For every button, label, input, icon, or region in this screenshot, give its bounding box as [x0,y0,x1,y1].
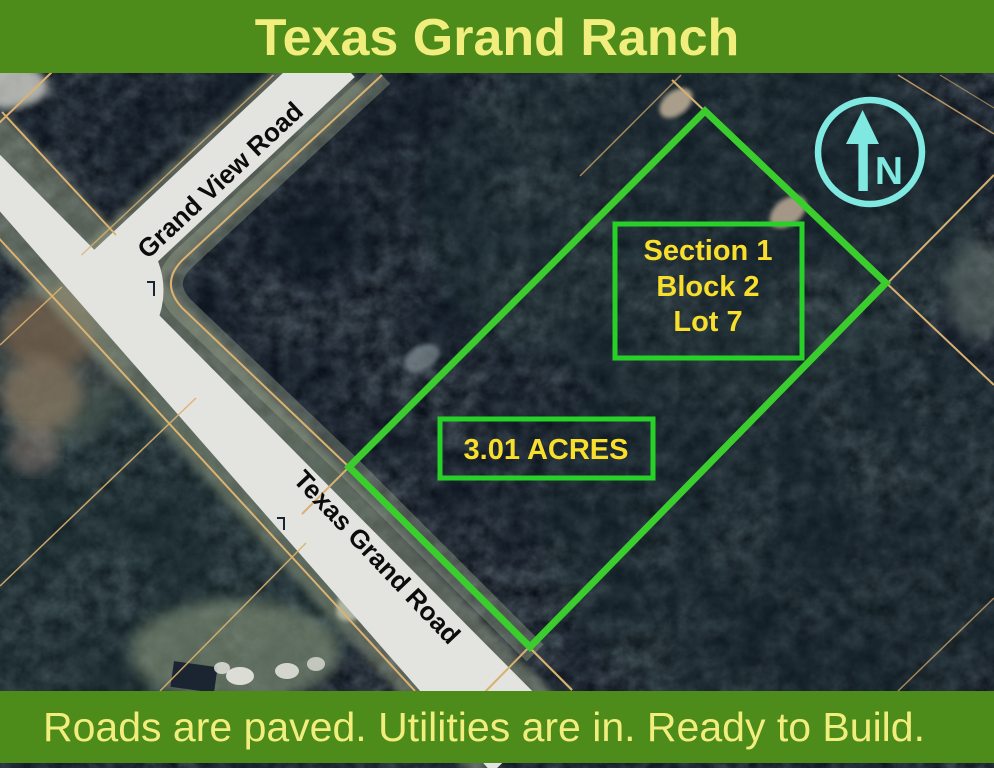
svg-text:Section 1: Section 1 [644,235,773,267]
svg-text:3.01 ACRES: 3.01 ACRES [464,434,629,466]
svg-text:Texas Grand Ranch: Texas Grand Ranch [255,9,740,67]
svg-text:Lot 7: Lot 7 [673,306,742,338]
svg-text:Block 2: Block 2 [656,271,759,303]
svg-text:Roads are paved. Utilities are: Roads are paved. Utilities are in. Ready… [43,704,925,750]
svg-text:N: N [875,150,903,193]
